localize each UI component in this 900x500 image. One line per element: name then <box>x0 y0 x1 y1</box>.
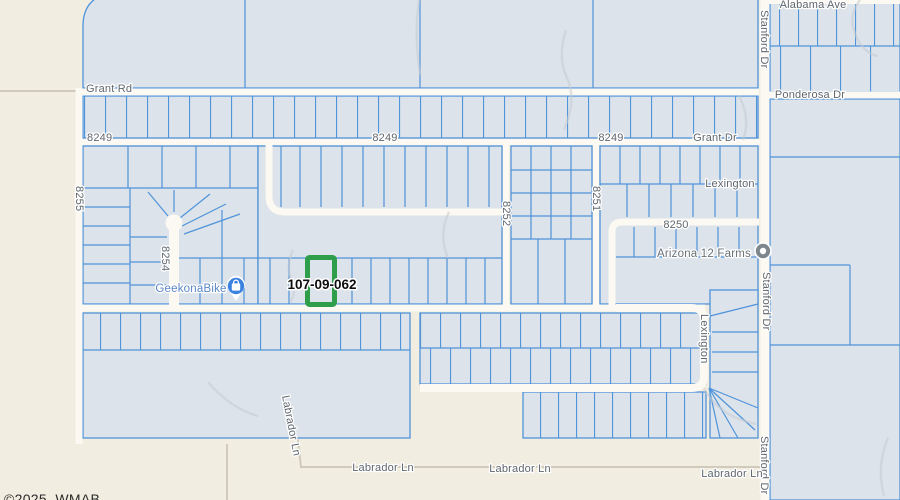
map-label-labrador-ln-west: Labrador Ln <box>352 462 414 474</box>
parcel-lines <box>770 46 900 92</box>
poi-dot-icon <box>755 243 771 259</box>
parcel-lines <box>523 392 706 438</box>
map-label-stanford-dr-top: Stanford Dr <box>758 10 770 69</box>
parcel-lines <box>420 348 706 384</box>
copyright-text: ©2025, WMAB <box>4 491 100 500</box>
parcel-block[interactable] <box>770 99 900 500</box>
map-label-geekonabike-label: GeekonaBike <box>155 283 226 295</box>
parcel-map-viewport[interactable]: Grant RdAlabama AveStanford DrPonderosa … <box>0 0 900 500</box>
map-label-arizona-12-farms-label: Arizona 12 Farms <box>657 248 751 260</box>
map-label-road-8249-west: 8249 <box>87 132 112 144</box>
map-label-road-8255: 8255 <box>73 186 85 211</box>
map-label-road-8252: 8252 <box>500 201 512 226</box>
map-label-ponderosa-dr: Ponderosa Dr <box>775 89 845 101</box>
map-label-road-8249-center: 8249 <box>372 132 397 144</box>
map-label-labrador-ln-east: Labrador Ln <box>701 468 763 480</box>
map-label-stanford-dr-bottom: Stanford Dr <box>758 436 770 495</box>
map-label-road-8251: 8251 <box>590 186 602 211</box>
map-label-alabama-ave: Alabama Ave <box>780 0 847 11</box>
map-label-labrador-ln-center: Labrador Ln <box>489 463 551 475</box>
map-label-grant-dr: Grant Dr <box>693 132 737 144</box>
map-label-grant-rd: Grant Rd <box>86 83 132 95</box>
parcel-lines <box>420 313 706 348</box>
map-label-road-8250: 8250 <box>663 219 688 231</box>
arizona-12-farms-marker[interactable] <box>755 243 771 259</box>
highlighted-parcel-id-label: 107-09-062 <box>287 277 356 292</box>
map-label-lexington-upper: Lexington <box>705 178 755 190</box>
map-label-lexington-loop: Lexington <box>698 314 710 364</box>
map-label-road-8249-east: 8249 <box>598 132 623 144</box>
map-label-stanford-dr-mid: Stanford Dr <box>760 272 772 331</box>
parcel-lines <box>83 96 758 138</box>
parcel-map-canvas[interactable]: Grant RdAlabama AveStanford DrPonderosa … <box>0 0 900 500</box>
parcel-lines <box>83 313 410 350</box>
map-label-road-8254: 8254 <box>159 246 171 271</box>
cul-de-sac <box>166 215 183 232</box>
